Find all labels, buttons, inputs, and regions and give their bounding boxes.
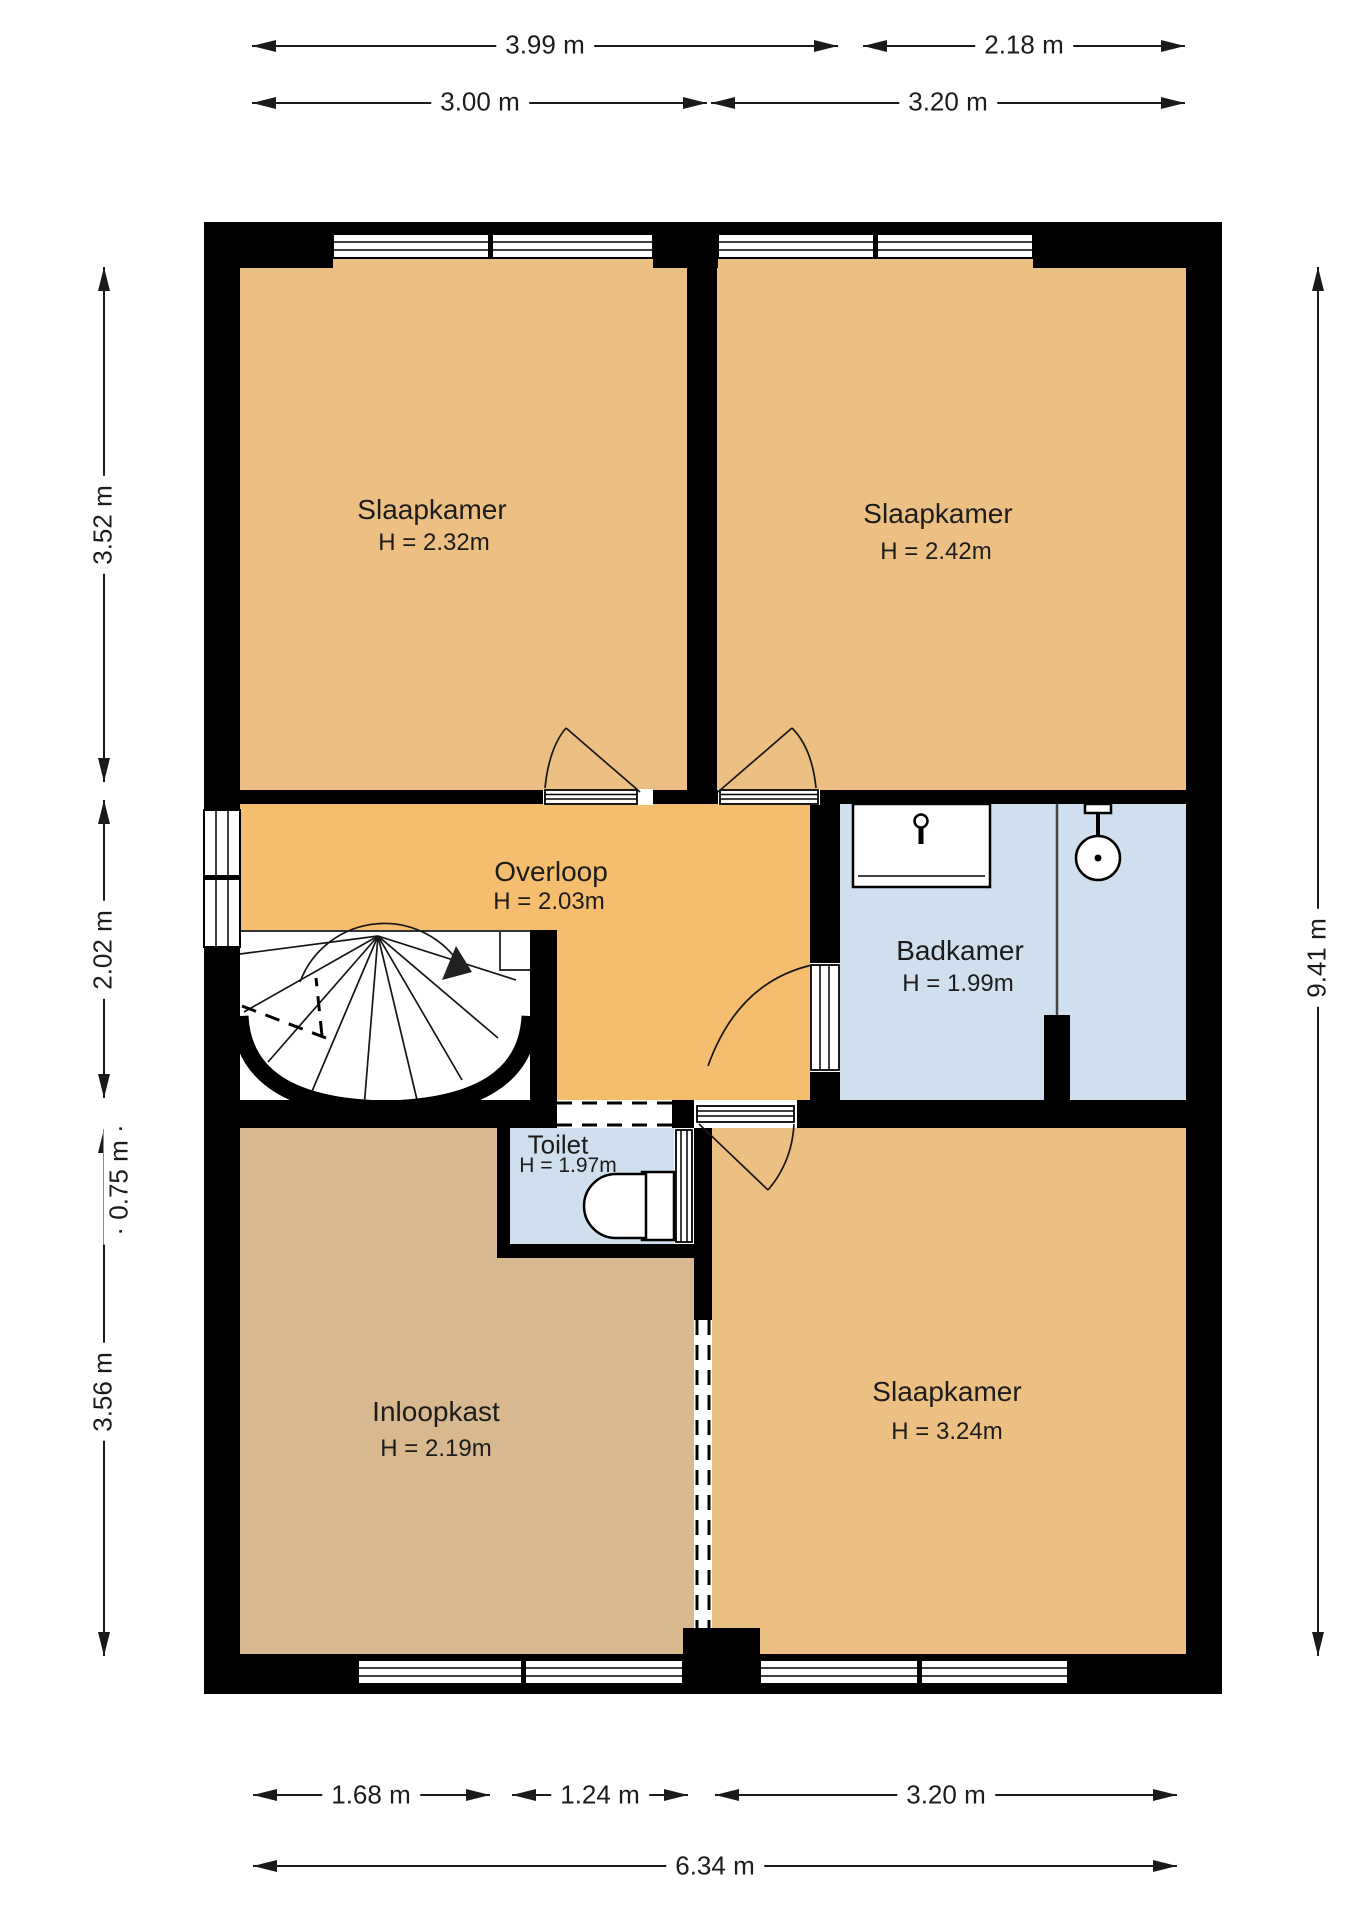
room-label-slaapkamer-3: Slaapkamer xyxy=(872,1376,1021,1408)
wall-bedroom-divider xyxy=(687,258,717,790)
spiral-staircase xyxy=(240,923,530,1109)
dimension-label: 3.20 m xyxy=(897,1780,995,1811)
wall-band-left xyxy=(204,1100,557,1128)
wall-shower-stub xyxy=(1044,1015,1070,1100)
wall-badkamer-left-lower xyxy=(810,1072,840,1100)
wall-corner-tl xyxy=(204,222,333,268)
floor-plan-drawing xyxy=(0,0,1358,1920)
room-height-inloopkast: H = 2.19m xyxy=(380,1435,491,1463)
window xyxy=(760,1660,1068,1684)
wall-band-right xyxy=(797,1100,1186,1128)
wall-left-upper xyxy=(204,222,240,810)
wall-right xyxy=(1186,222,1222,1694)
dimension-label: 3.20 m xyxy=(899,87,997,118)
dimension-label: 2.02 m xyxy=(88,901,119,999)
floor-plan: Slaapkamer H = 2.32m Slaapkamer H = 2.42… xyxy=(0,0,1358,1920)
wall-pier-bottom xyxy=(683,1628,760,1694)
dimension-label: 1.68 m xyxy=(322,1780,420,1811)
wall-toilet-left xyxy=(497,1128,510,1244)
wall-badkamer-left-upper xyxy=(810,804,840,963)
room-label-badkamer: Badkamer xyxy=(896,935,1024,967)
room-inloopkast xyxy=(240,1128,497,1658)
room-height-slaapkamer-2: H = 2.42m xyxy=(880,538,991,566)
window xyxy=(358,1660,683,1684)
wall-stair-right xyxy=(530,930,557,1128)
wall-bedroom3-left xyxy=(694,1128,712,1320)
dashed-opening xyxy=(694,1320,712,1628)
toilet-bowl-icon xyxy=(584,1172,674,1240)
room-label-overloop: Overloop xyxy=(494,856,608,888)
dashed-opening xyxy=(557,1100,672,1128)
window xyxy=(333,234,653,258)
wall-mid-c xyxy=(820,790,1186,804)
room-height-slaapkamer-3: H = 3.24m xyxy=(891,1418,1002,1446)
room-label-inloopkast: Inloopkast xyxy=(372,1396,500,1428)
wall-band-stub xyxy=(672,1100,694,1128)
room-overloop-lower xyxy=(557,930,810,1102)
dimension-label: 9.41 m xyxy=(1302,909,1333,1007)
wall-left-lower xyxy=(204,947,240,1694)
dimension-label: 3.56 m xyxy=(88,1343,119,1441)
sink xyxy=(853,804,990,887)
window xyxy=(204,810,240,947)
wall-toilet-bottom xyxy=(497,1244,694,1258)
dimension-label: 6.34 m xyxy=(666,1851,764,1882)
room-height-toilet: H = 1.97m xyxy=(519,1154,616,1178)
wall-corner-tr xyxy=(1033,222,1222,268)
door xyxy=(674,1128,694,1244)
room-label-slaapkamer-2: Slaapkamer xyxy=(863,498,1012,530)
dimension-label: 2.18 m xyxy=(975,30,1073,61)
room-height-overloop: H = 2.03m xyxy=(493,888,604,916)
dimension-label: · 0.75 m · xyxy=(104,1115,135,1244)
dimension-label: 1.24 m xyxy=(551,1780,649,1811)
dimension-label: 3.00 m xyxy=(431,87,529,118)
dimension-label: 3.52 m xyxy=(88,476,119,574)
window xyxy=(718,234,1033,258)
room-height-slaapkamer-1: H = 2.32m xyxy=(378,529,489,557)
room-inloopkast-lower xyxy=(497,1258,694,1658)
wall-mid-a xyxy=(240,790,543,804)
room-height-badkamer: H = 1.99m xyxy=(902,970,1013,998)
wall-mid-b xyxy=(653,790,718,804)
dimension-label: 3.99 m xyxy=(496,30,594,61)
room-label-slaapkamer-1: Slaapkamer xyxy=(357,494,506,526)
